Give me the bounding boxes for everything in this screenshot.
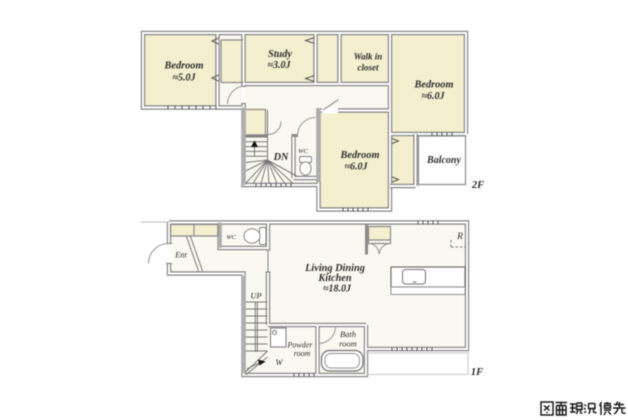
svg-text:Bedroom: Bedroom bbox=[164, 61, 204, 72]
svg-text:Balcony: Balcony bbox=[426, 155, 461, 166]
svg-text:≈3.0J: ≈3.0J bbox=[268, 60, 292, 71]
svg-text:room: room bbox=[294, 349, 311, 358]
svg-text:≈5.0J: ≈5.0J bbox=[173, 73, 197, 84]
svg-text:Bedroom: Bedroom bbox=[340, 150, 380, 161]
svg-text:closet: closet bbox=[358, 63, 379, 73]
svg-text:Ent: Ent bbox=[174, 250, 187, 260]
svg-text:R: R bbox=[456, 232, 463, 242]
svg-text:≈6.0J: ≈6.0J bbox=[345, 162, 369, 173]
svg-text:≈18.0J: ≈18.0J bbox=[323, 284, 352, 295]
svg-text:Kitchen: Kitchen bbox=[317, 273, 351, 284]
svg-text:WC: WC bbox=[298, 148, 308, 155]
svg-text:2F: 2F bbox=[471, 180, 484, 191]
svg-text:1F: 1F bbox=[471, 367, 483, 378]
svg-text:UP: UP bbox=[250, 291, 261, 301]
svg-text:WC: WC bbox=[226, 234, 236, 241]
svg-text:room: room bbox=[339, 339, 357, 349]
svg-text:Walk in: Walk in bbox=[354, 52, 383, 62]
svg-text:Bath: Bath bbox=[340, 329, 356, 339]
svg-text:W: W bbox=[275, 357, 283, 367]
svg-text:DN: DN bbox=[273, 152, 289, 163]
svg-text:≈6.0J: ≈6.0J bbox=[422, 91, 446, 102]
svg-text:Bedroom: Bedroom bbox=[414, 80, 454, 91]
svg-text:Study: Study bbox=[268, 49, 292, 60]
